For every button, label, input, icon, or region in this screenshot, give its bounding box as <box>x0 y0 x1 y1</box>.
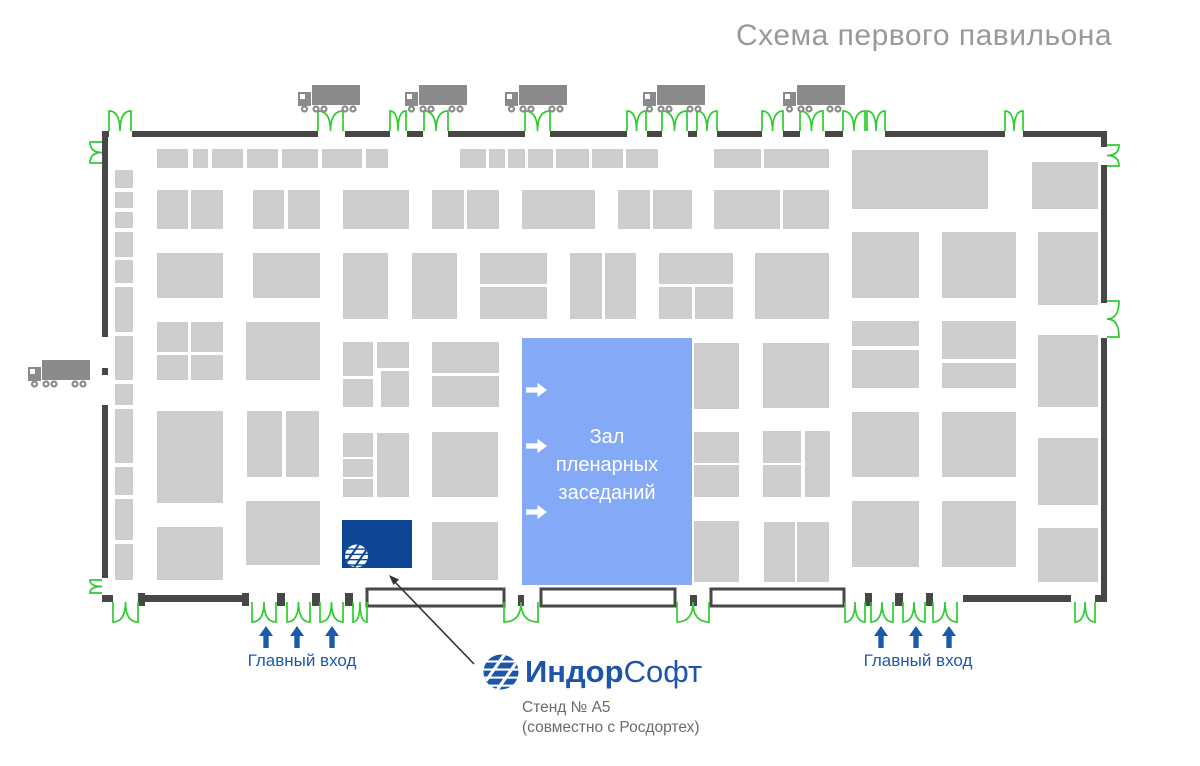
booth <box>212 149 243 168</box>
booth <box>480 287 547 319</box>
booth <box>695 287 733 319</box>
wall-segment <box>448 131 525 137</box>
wall-segment <box>102 137 108 337</box>
wall-segment <box>138 593 145 606</box>
booth <box>694 465 739 497</box>
booth <box>253 190 284 229</box>
booth <box>253 253 320 298</box>
booth <box>626 149 658 168</box>
booth <box>366 149 388 168</box>
truck-icon <box>643 85 705 113</box>
wall-segment <box>102 368 108 375</box>
main-entrance-label-right: Главный вход <box>853 651 983 671</box>
booth <box>432 190 464 229</box>
booth <box>852 412 919 477</box>
door-icon <box>109 111 131 131</box>
booth <box>714 190 780 229</box>
booth <box>381 371 409 407</box>
booth <box>763 343 829 408</box>
wall-segment <box>1095 595 1107 602</box>
booth <box>694 343 739 409</box>
booth <box>191 190 223 229</box>
booth <box>115 232 133 257</box>
booth <box>852 501 919 567</box>
booth <box>659 287 692 319</box>
booth <box>605 253 636 319</box>
booth <box>157 527 223 580</box>
door-icon <box>252 602 276 622</box>
booth <box>694 432 739 463</box>
wall-segment <box>277 593 285 606</box>
booth <box>115 170 133 188</box>
truck-icon <box>405 85 467 113</box>
hall-label-line: Зал <box>522 423 692 451</box>
indorsoft-logo: ИндорСофт <box>482 653 702 691</box>
booth <box>763 465 801 497</box>
booth <box>528 149 553 168</box>
wall-segment <box>783 131 800 137</box>
entrance-arrow-icon <box>325 626 339 648</box>
door-icon <box>762 111 783 131</box>
booth <box>489 149 505 168</box>
vestibules-layer <box>367 589 844 606</box>
booth <box>247 411 282 477</box>
booth <box>246 322 320 380</box>
booth <box>377 342 409 368</box>
booth <box>343 479 373 497</box>
door-icon <box>871 602 893 622</box>
wall-segment <box>1101 165 1107 303</box>
booth <box>191 355 223 380</box>
booth <box>659 253 733 284</box>
wall-segment <box>407 131 423 137</box>
wall-segment <box>102 595 113 602</box>
booth <box>467 190 499 229</box>
booth <box>343 253 388 319</box>
door-icon <box>318 111 343 131</box>
booth <box>783 190 829 229</box>
booth <box>322 149 362 168</box>
booth <box>1032 162 1098 209</box>
booth <box>115 287 133 332</box>
door-icon <box>800 111 823 131</box>
floorplan-svg <box>0 0 1200 766</box>
booth <box>157 149 188 168</box>
plenary-hall-label: Зал пленарных заседаний <box>522 423 692 507</box>
booth <box>694 521 739 582</box>
door-icon <box>627 111 646 131</box>
booth <box>343 433 373 457</box>
door-icon <box>113 602 138 622</box>
booth <box>157 411 223 503</box>
stand-partner: (совместно с Росдортех) <box>522 718 700 738</box>
wall-segment <box>242 593 249 606</box>
entrance-arrow-icon <box>290 626 304 648</box>
booth <box>1038 232 1098 305</box>
booth <box>115 544 133 580</box>
hall-label-line: пленарных <box>522 451 692 479</box>
booth <box>115 499 133 540</box>
booth <box>1038 335 1098 407</box>
booth <box>191 322 223 352</box>
wall-segment <box>717 131 762 137</box>
booth <box>115 260 133 283</box>
wall-segment <box>688 131 697 137</box>
booth <box>460 149 486 168</box>
indor-globe-icon <box>484 655 519 692</box>
logo-text: ИндорСофт <box>525 654 702 690</box>
booth <box>942 321 1016 359</box>
booth <box>343 342 373 376</box>
booth <box>1038 528 1098 582</box>
door-icon <box>845 602 865 622</box>
booth <box>942 501 1016 567</box>
booth <box>852 150 988 209</box>
booth <box>115 192 133 208</box>
door-icon <box>287 602 310 622</box>
wall-segment <box>885 131 1005 137</box>
booth <box>343 459 373 477</box>
booth <box>508 149 525 168</box>
wall-segment <box>312 593 320 606</box>
booth <box>115 409 133 463</box>
vestibule <box>711 589 844 606</box>
booth <box>432 432 498 497</box>
booth <box>115 212 133 228</box>
page-title: Схема первого павильона <box>736 19 1112 53</box>
door-icon <box>1075 602 1095 622</box>
door-icon <box>525 111 550 131</box>
truck-icon <box>28 360 90 388</box>
wall-segment <box>132 131 318 137</box>
booth <box>286 411 319 477</box>
wall-segment <box>1101 338 1107 602</box>
door-icon <box>867 111 885 131</box>
vestibule <box>367 589 504 606</box>
booth <box>432 342 499 373</box>
main-entrance-label-left: Главный вход <box>237 651 367 671</box>
door-icon <box>933 602 957 622</box>
indorsoft-globe-icon <box>482 653 520 691</box>
booth <box>288 190 320 229</box>
entrance-arrow-icon <box>874 626 888 648</box>
booth <box>157 253 223 298</box>
wall-segment <box>963 595 1071 602</box>
booth <box>157 190 188 229</box>
booth <box>764 149 829 168</box>
booth <box>115 467 133 495</box>
booth <box>432 522 498 580</box>
stand-caption: Стенд № А5 (совместно с Росдортех) <box>522 698 700 738</box>
booth <box>763 431 801 463</box>
booth <box>653 190 692 229</box>
logo-text-regular: Софт <box>624 654 703 689</box>
wall-segment <box>345 593 353 606</box>
booth <box>193 149 208 168</box>
booth <box>797 522 829 582</box>
hall-label-line: заседаний <box>522 479 692 507</box>
booth <box>592 149 623 168</box>
door-icon <box>677 602 709 622</box>
entrance-arrow-icon <box>259 626 273 648</box>
booth <box>377 433 409 497</box>
booth <box>115 336 133 380</box>
door-icon <box>662 111 687 131</box>
wall-segment <box>926 593 933 606</box>
door-icon <box>90 142 102 163</box>
booth <box>755 253 829 319</box>
door-icon <box>320 602 343 622</box>
booth <box>556 149 589 168</box>
door-icon <box>424 111 448 131</box>
pavilion-scheme: Схема первого павильона Зал пленарных за… <box>0 0 1200 766</box>
wall-segment <box>1023 131 1107 137</box>
booth <box>942 412 1016 477</box>
booth <box>764 522 795 582</box>
booth <box>570 253 602 319</box>
stand-number: Стенд № А5 <box>522 698 700 718</box>
booth <box>157 322 188 352</box>
booth <box>412 253 457 319</box>
booth <box>714 149 761 168</box>
door-icon <box>843 111 865 131</box>
door-icon <box>697 111 717 131</box>
truck-icon <box>783 85 845 113</box>
truck-icon <box>298 85 360 113</box>
truck-icon <box>505 85 567 113</box>
booth <box>522 190 595 229</box>
entrance-arrow-icon <box>942 626 956 648</box>
wall-segment <box>145 595 243 602</box>
wall-segment <box>345 131 390 137</box>
logo-text-bold: Индор <box>525 654 624 689</box>
door-icon <box>504 602 538 622</box>
booth <box>157 355 188 380</box>
entrance-arrow-icon <box>909 626 923 648</box>
booth <box>852 350 919 388</box>
booth <box>618 190 650 229</box>
booth <box>247 149 278 168</box>
booth <box>343 379 373 407</box>
door-icon <box>1107 301 1119 337</box>
booth <box>115 384 133 405</box>
door-icon <box>903 602 925 622</box>
booth <box>942 232 1016 298</box>
booth <box>282 149 318 168</box>
wall-segment <box>1101 137 1107 147</box>
booth <box>343 190 409 229</box>
wall-segment <box>550 131 627 137</box>
vestibule <box>541 589 675 606</box>
booth <box>805 431 830 497</box>
door-icon <box>1005 111 1023 131</box>
booth <box>852 321 919 346</box>
wall-segment <box>102 131 109 137</box>
wall-segment <box>825 131 843 137</box>
wall-segment <box>895 593 903 606</box>
booth <box>852 232 919 298</box>
booth <box>480 253 547 284</box>
booth <box>246 501 320 565</box>
wall-segment <box>102 405 108 578</box>
booth <box>1038 438 1098 505</box>
door-icon <box>390 111 406 131</box>
wall-segment <box>647 131 662 137</box>
booth <box>432 376 499 407</box>
door-icon <box>1107 145 1119 166</box>
booth <box>942 363 1016 388</box>
door-icon <box>90 580 102 593</box>
door-icon <box>353 602 367 622</box>
